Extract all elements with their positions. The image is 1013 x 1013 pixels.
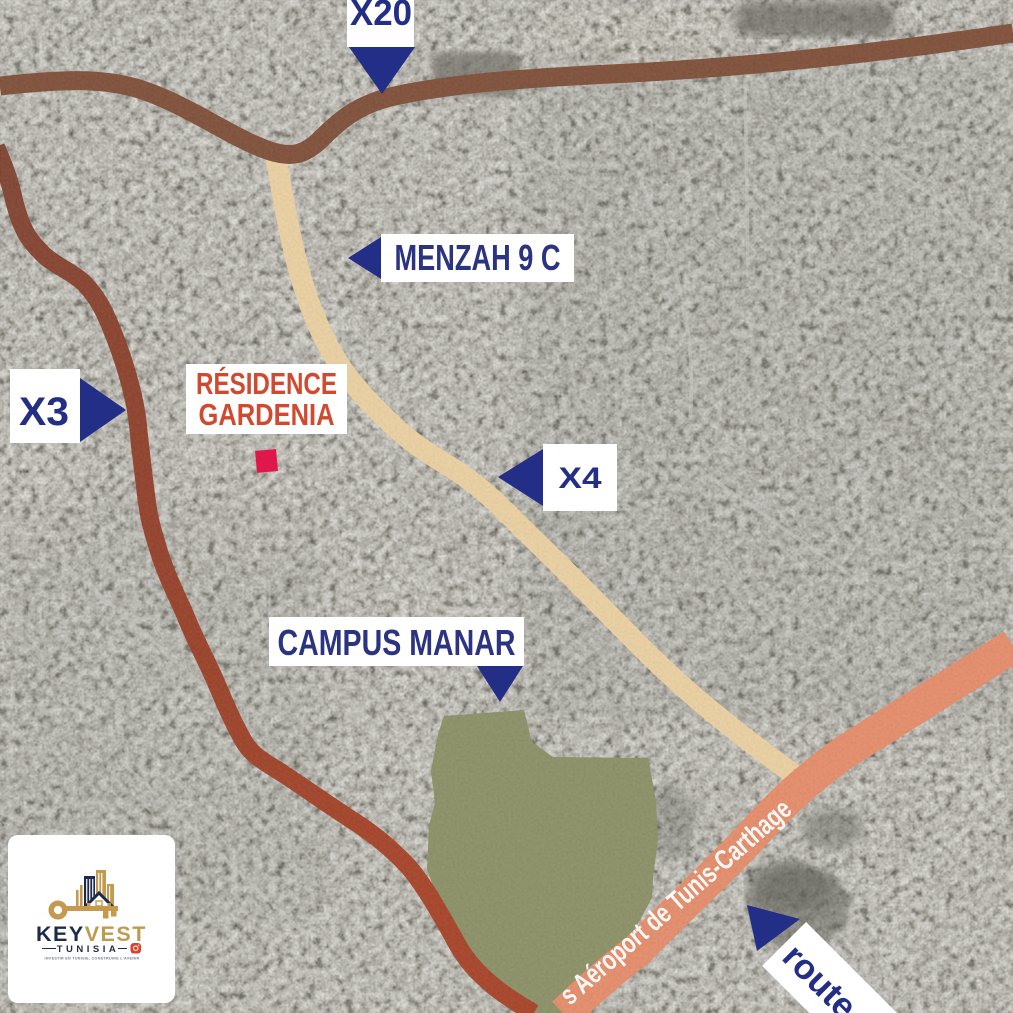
svg-text:GARDENIA: GARDENIA <box>199 397 335 432</box>
svg-text:X4: X4 <box>559 462 602 495</box>
svg-text:X20: X20 <box>350 0 412 33</box>
svg-text:RÉSIDENCE: RÉSIDENCE <box>196 366 337 401</box>
svg-text:INVESTIR EN TUNISIE, CONSTRUIR: INVESTIR EN TUNISIE, CONSTRUIRE L'AVENIR <box>45 957 140 961</box>
svg-text:TUNISIA: TUNISIA <box>57 944 120 955</box>
svg-text:X3: X3 <box>19 390 69 434</box>
svg-text:CAMPUS MANAR: CAMPUS MANAR <box>278 622 516 663</box>
svg-text:MENZAH 9 C: MENZAH 9 C <box>395 237 561 278</box>
svg-text:KEYVEST: KEYVEST <box>36 922 147 946</box>
